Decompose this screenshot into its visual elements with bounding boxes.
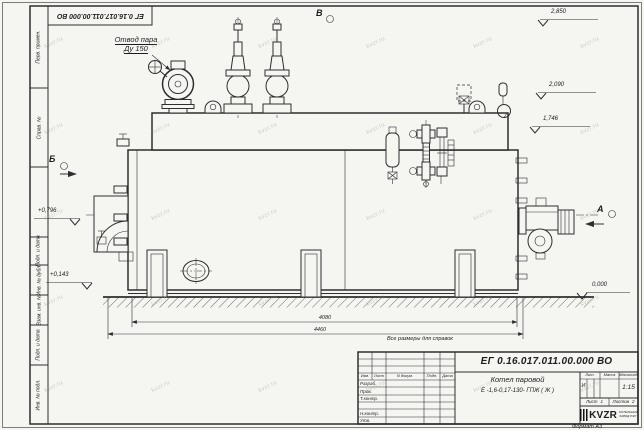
view-marker-b: Б (49, 154, 55, 164)
header-lit: Лит. (580, 373, 600, 378)
sample-cooler (386, 127, 399, 184)
row-utv: Утв. (360, 418, 370, 423)
row-prov: Пров. (360, 389, 372, 394)
elevation-0796: +0,796 (38, 208, 57, 215)
sheet-cell: Лист 1 (580, 398, 609, 406)
frame-label-inv-podl: Инв. № подл. (30, 365, 48, 424)
header-list: Лист (372, 374, 386, 379)
row-nkontr: Н.контр. (360, 411, 379, 416)
steam-outlet-callout: Отвод пара Ду 150 (103, 36, 169, 53)
kvzr-logo: KVZR КОТЕЛЬНЫЙ ЗАВОД РЭП (580, 406, 638, 424)
header-massa: Масса (600, 373, 619, 378)
elevation-2090: 2,090 (549, 82, 564, 89)
view-marker-v: В (316, 8, 323, 18)
elevation-0143: +0,143 (50, 272, 69, 279)
title-product-code: Е -1,6-0,17-130- ГПЖ ( Ж ) (455, 388, 580, 395)
logo-subtitle: КОТЕЛЬНЫЙ ЗАВОД РЭП (619, 411, 638, 418)
format-note: Формат А3 (572, 424, 602, 430)
steam-outlet-valve (149, 55, 195, 113)
drawing-sheet: kvzr.rukvzr.rukvzr.rukvzr.rukvzr.rukvzr.… (0, 0, 644, 430)
frame-label-vzam-inv: Взам. инв. № (30, 295, 48, 325)
header-ndokum: N докум. (386, 374, 424, 379)
frame-label-perv-primen: Перв. примен. (30, 6, 48, 88)
logo-barcode-mark (580, 409, 588, 421)
header-data: Дата (440, 374, 455, 379)
frame-label-podp-data-1: Подп. и дата (30, 237, 48, 265)
row-tkontr: Т.контр. (360, 396, 378, 401)
sheets-cell: Листов 2 (609, 398, 638, 406)
safety-valve-1 (224, 17, 252, 118)
logo-text: KVZR (589, 410, 617, 421)
dimension-4080: 4080 (300, 315, 350, 321)
view-marker-a: А (597, 204, 604, 214)
elevation-1746: 1,746 (543, 116, 558, 123)
reference-note: Все размеры для справок (387, 336, 453, 342)
rotated-doc-stamp: ЕГ 0.16.017.011.00.000 ВО (48, 6, 152, 25)
elevation-0000: 0,000 (592, 282, 607, 289)
row-razrab: Разраб. (360, 381, 376, 386)
frame-label-inv-dubl: Инв. № дубл. (30, 265, 48, 295)
header-masshtab: Масштаб (619, 373, 638, 378)
frame-label-sprav-no: Справ. № (30, 88, 48, 167)
safety-valve-2 (263, 17, 291, 118)
frame-label-podp-data-2: Подп. и дата (30, 325, 48, 365)
lit-value: И (580, 383, 587, 389)
front-burner-assembly (94, 134, 133, 261)
dimension-4460: 4460 (295, 327, 345, 333)
title-product-name: Котел паровой (455, 376, 580, 385)
header-podp: Подп. (424, 374, 440, 379)
rear-burner-unit (516, 158, 574, 279)
ground-line (103, 297, 594, 308)
title-doc-number: ЕГ 0.16.017.011.00.000 ВО (455, 352, 638, 372)
scale-value: 1:15 (619, 384, 638, 391)
header-izm: Изм. (358, 374, 372, 379)
callout-line2: Ду 150 (124, 44, 148, 54)
elevation-2850: 2,850 (551, 9, 566, 16)
